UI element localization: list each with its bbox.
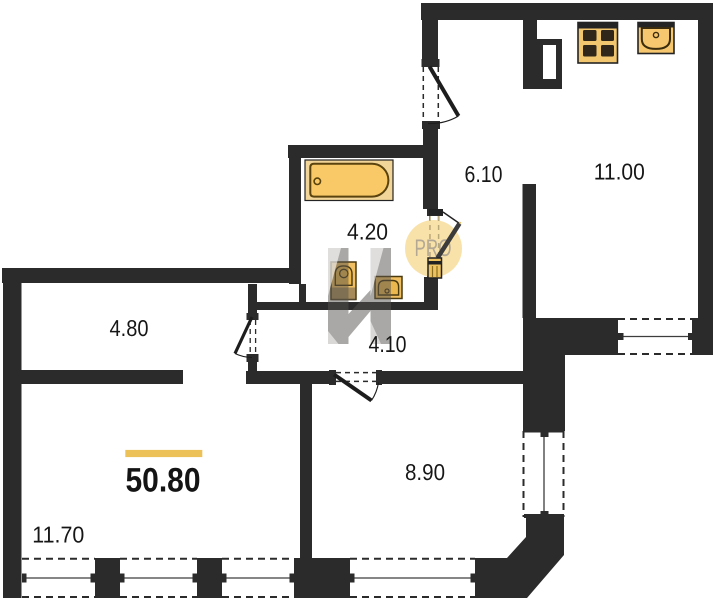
svg-text:6.10: 6.10: [465, 161, 503, 187]
svg-text:4.10: 4.10: [369, 331, 407, 357]
svg-text:11.70: 11.70: [32, 522, 84, 548]
svg-text:4.20: 4.20: [347, 219, 388, 245]
svg-text:8.90: 8.90: [405, 459, 445, 485]
svg-text:50.80: 50.80: [126, 462, 201, 500]
svg-text:11.00: 11.00: [594, 158, 645, 184]
svg-text:4.80: 4.80: [110, 315, 149, 341]
